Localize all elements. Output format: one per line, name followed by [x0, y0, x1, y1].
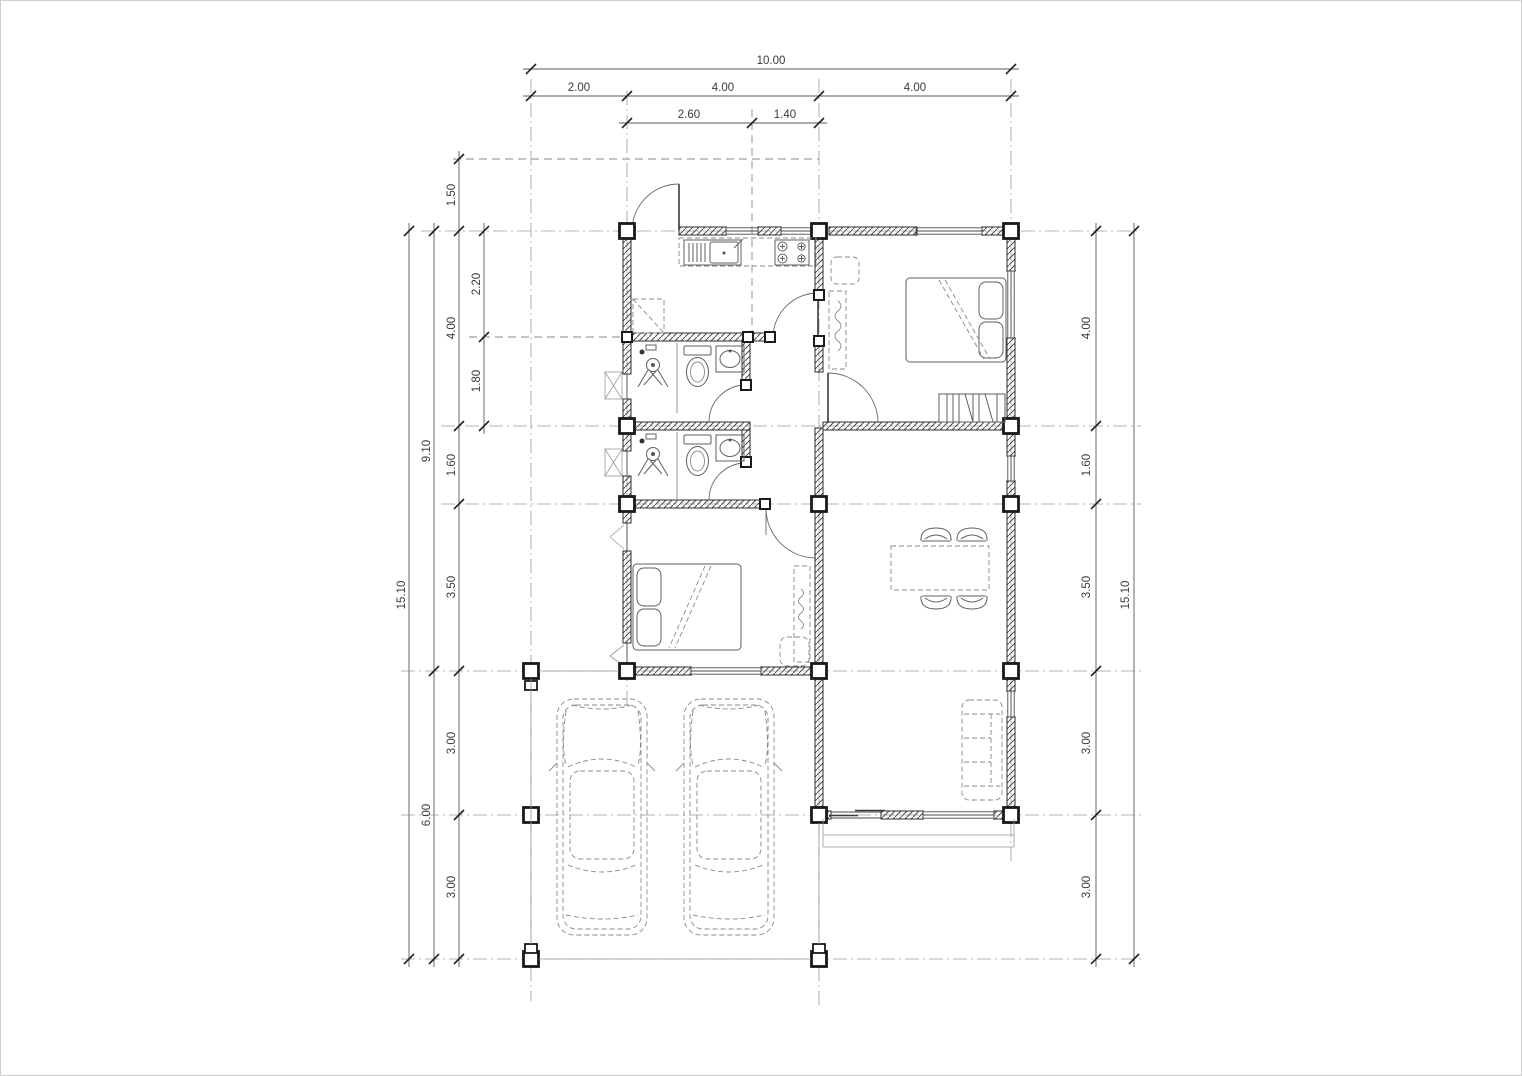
dim-left-seg-2: 4.00 [446, 317, 458, 339]
terrace-step [823, 819, 1014, 847]
desk-symbol [780, 566, 810, 666]
bedroom-1 [829, 257, 1006, 422]
floor-plan-page: 10.00 2.00 4.00 4.00 2.60 1.40 15.10 9.1… [0, 0, 1522, 1076]
windows [605, 226, 1016, 820]
entry-door [632, 184, 679, 230]
desk-symbol [829, 257, 859, 369]
kitchen-door [773, 293, 818, 338]
bedroom2-door [766, 508, 816, 558]
window-bedroom1-top [916, 226, 982, 236]
refrigerator-symbol [633, 299, 664, 333]
window-kitchen-1 [726, 226, 758, 236]
floor-plan-canvas: 10.00 2.00 4.00 4.00 2.60 1.40 15.10 9.1… [1, 1, 1522, 1076]
dim-right-seg-5: 3.00 [1081, 876, 1093, 898]
grid-lines [401, 79, 1141, 1006]
dim-right-seg-1: 4.00 [1081, 317, 1093, 339]
dim-left-seg-5: 3.00 [446, 732, 458, 754]
dim-left-sub-1: 2.20 [471, 273, 483, 295]
window-corridor-right [1006, 456, 1016, 481]
bedroom1-door [828, 373, 878, 423]
walls [623, 227, 1015, 819]
dim-left-group-1: 9.10 [421, 440, 433, 462]
dim-left-seg-4: 3.50 [446, 576, 458, 598]
dim-right-overall: 15.10 [1120, 581, 1132, 610]
dimension-ticks [404, 64, 1139, 964]
dim-right-seg-3: 3.50 [1081, 576, 1093, 598]
dining-area [891, 528, 989, 609]
structural-columns [524, 224, 1019, 967]
dim-top-sub-1: 2.60 [678, 109, 700, 121]
window-bedroom2-bottom [691, 666, 761, 676]
dimension-labels: 10.00 2.00 4.00 4.00 2.60 1.40 15.10 9.1… [396, 55, 1132, 898]
stove-symbol [775, 240, 809, 265]
dim-left-overall: 15.10 [396, 581, 408, 610]
dim-left-seg-6: 3.00 [446, 876, 458, 898]
window-bathroom1-left [605, 372, 627, 399]
dimension-system: 10.00 2.00 4.00 4.00 2.60 1.40 15.10 9.1… [396, 55, 1139, 967]
dining-table-symbol [891, 546, 989, 590]
kitchen-counter [679, 238, 816, 266]
car-1 [549, 699, 655, 935]
bathroom2-door [709, 463, 746, 500]
car-2 [676, 699, 782, 935]
sliding-door-living [829, 811, 885, 819]
dim-left-seg-3: 1.60 [446, 454, 458, 476]
dim-top-seg-3: 4.00 [904, 82, 926, 94]
window-bedroom2-left-1 [610, 523, 627, 551]
dim-left-sub-2: 1.80 [471, 370, 483, 392]
dim-top-seg-1: 2.00 [568, 82, 590, 94]
wardrobe-symbol [939, 394, 1005, 422]
dim-top-sub-2: 1.40 [774, 109, 796, 121]
column-base [525, 944, 537, 953]
column-base [813, 944, 825, 953]
window-bedroom1-right [1006, 271, 1016, 338]
kitchen-sink-symbol [684, 239, 743, 265]
window-living-right [1006, 691, 1016, 717]
window-living-bottom [923, 810, 994, 820]
bed-symbol [633, 564, 741, 650]
dim-top-overall: 10.00 [757, 55, 786, 67]
dim-top-seg-2: 4.00 [712, 82, 734, 94]
dim-right-seg-2: 1.60 [1081, 454, 1093, 476]
dim-left-group-2: 6.00 [421, 804, 433, 826]
dim-left-seg-1: 1.50 [446, 184, 458, 206]
dim-right-seg-4: 3.00 [1081, 732, 1093, 754]
window-bathroom2-left [605, 449, 627, 476]
bedroom-2 [633, 564, 810, 666]
bathroom-1 [638, 343, 744, 413]
sofa-symbol [962, 700, 1002, 800]
living-area [823, 700, 1014, 847]
bed-symbol [906, 278, 1006, 362]
kitchen [633, 238, 816, 333]
